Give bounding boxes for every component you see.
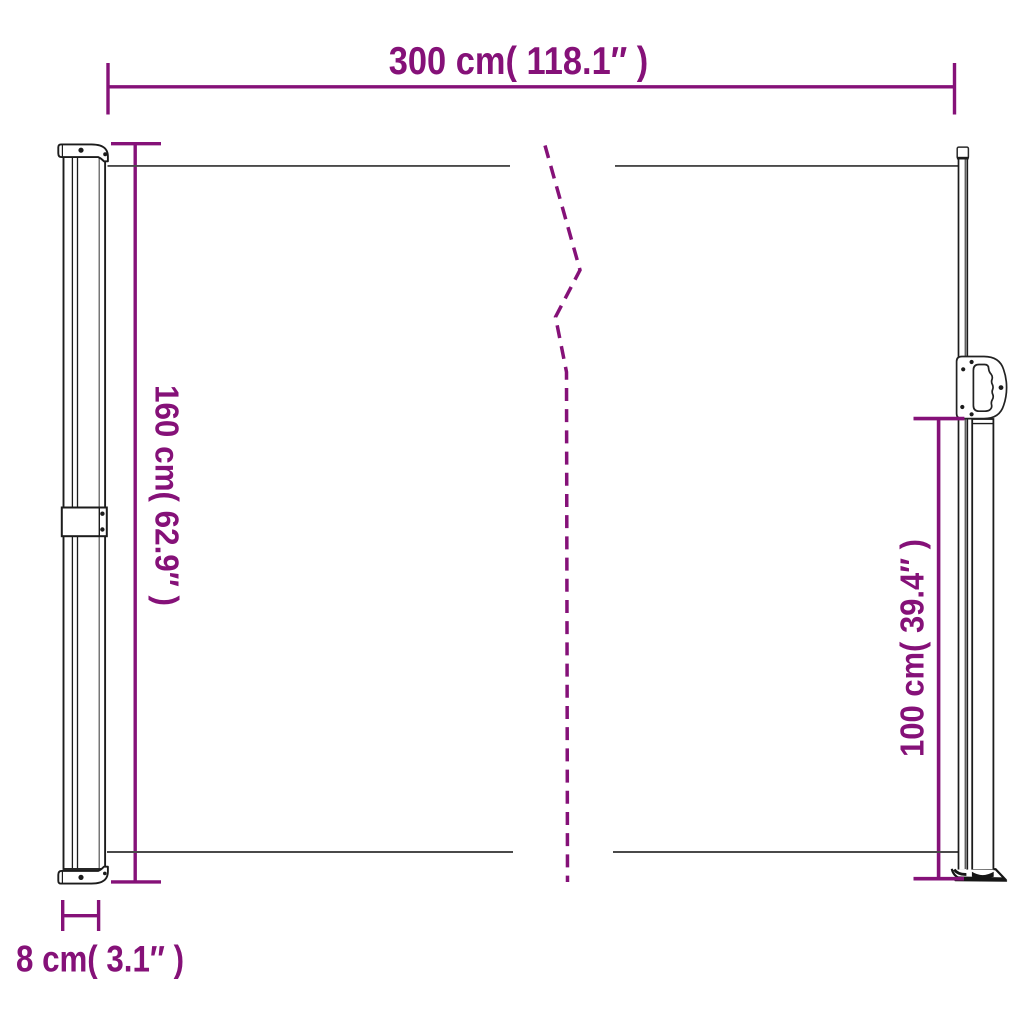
svg-text:100 cm( 39.4″ ): 100 cm( 39.4″ ) (894, 539, 931, 757)
svg-text:160 cm( 62.9″ ): 160 cm( 62.9″ ) (148, 385, 185, 606)
svg-text:8 cm( 3.1″ ): 8 cm( 3.1″ ) (16, 939, 184, 980)
svg-text:300 cm( 118.1″ ): 300 cm( 118.1″ ) (389, 40, 649, 83)
